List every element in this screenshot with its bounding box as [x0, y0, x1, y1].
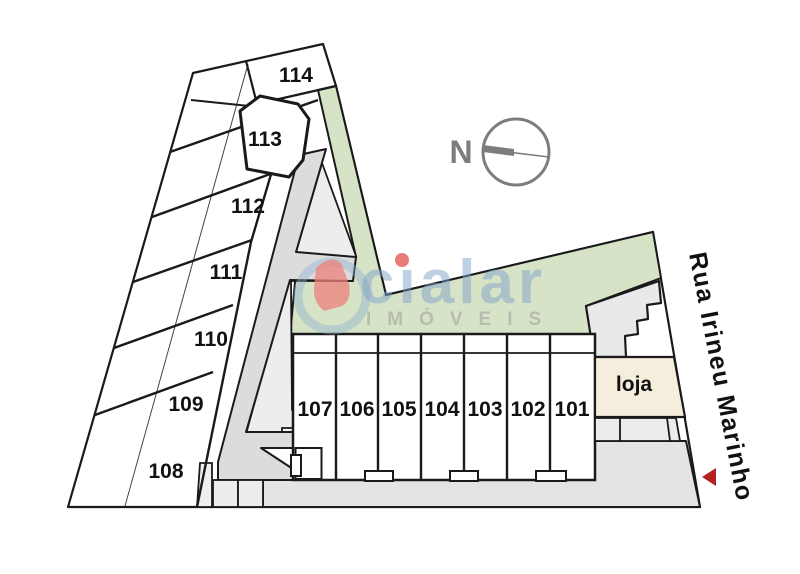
- watermark-brand: cıalar: [360, 248, 546, 317]
- unit-label-110: 110: [194, 328, 228, 351]
- unit-label-104: 104: [424, 398, 459, 421]
- unit-label-106: 106: [339, 398, 374, 421]
- loja-label: loja: [616, 373, 652, 396]
- sidewalk-square-1: [213, 480, 238, 507]
- unit-label-105: 105: [381, 398, 416, 421]
- door-tab-2: [450, 471, 478, 481]
- unit-label-108: 108: [148, 460, 183, 483]
- watermark-tagline: IMÓVEIS: [366, 308, 557, 330]
- door-tab-3: [536, 471, 566, 481]
- walkway-slit: [291, 455, 301, 476]
- unit-label-114: 114: [279, 64, 313, 87]
- compass: N: [449, 119, 549, 185]
- unit-label-111: 111: [210, 261, 243, 284]
- direction-marker-icon: [702, 468, 716, 486]
- unit-label-103: 103: [467, 398, 502, 421]
- compass-label: N: [449, 134, 472, 170]
- site-plan: 114 113 112 111 110 109 108 107 106 105 …: [0, 0, 800, 569]
- unit-label-101: 101: [554, 398, 589, 421]
- watermark-i-dot-icon: [395, 253, 409, 267]
- unit-label-102: 102: [510, 398, 545, 421]
- sidewalk-square-2: [238, 480, 263, 507]
- door-tab-1: [365, 471, 393, 481]
- unit-label-113: 113: [248, 128, 282, 151]
- unit-label-107: 107: [297, 398, 332, 421]
- street-label: Rua Irineu Marinho: [683, 250, 759, 504]
- unit-label-112: 112: [231, 195, 265, 218]
- unit-label-109: 109: [168, 393, 203, 416]
